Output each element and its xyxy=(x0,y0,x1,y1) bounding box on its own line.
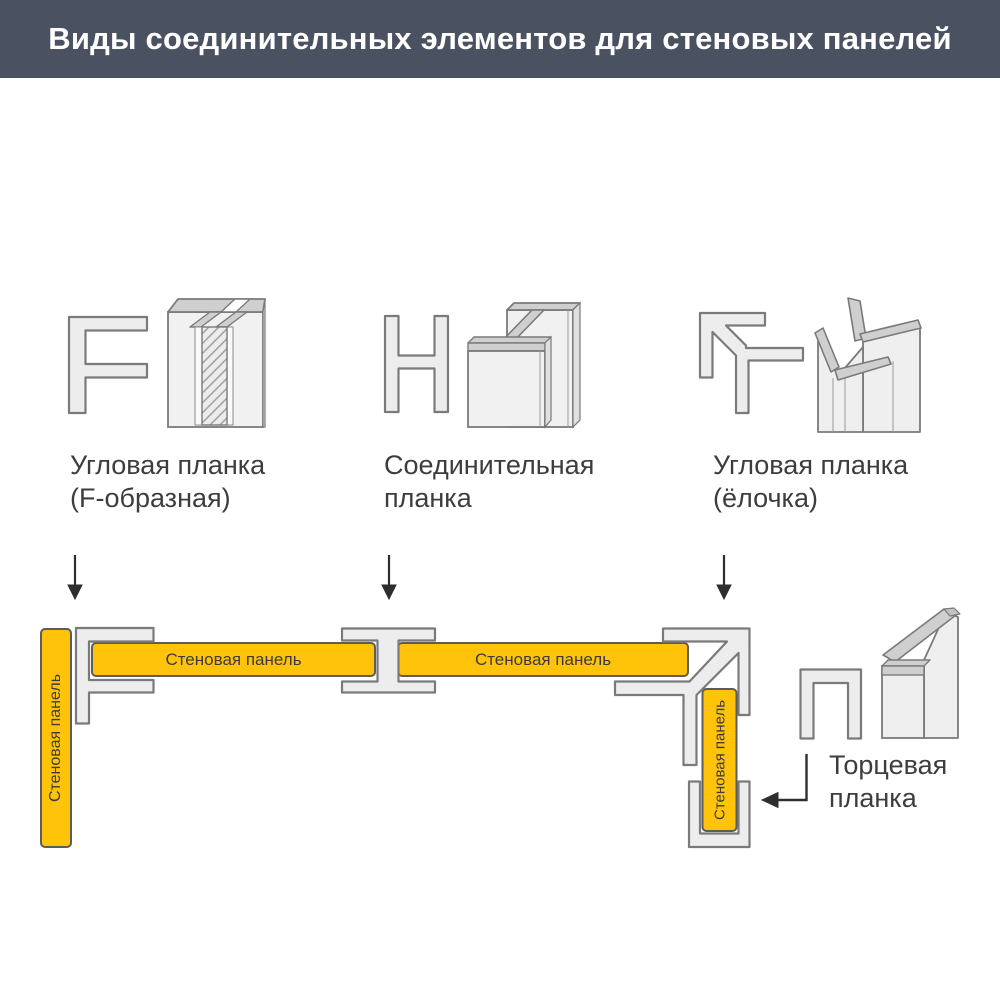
wall-panel-label-horizontal-2: Стеновая панель xyxy=(398,643,688,676)
header-bar: Виды соединительных элементов для стенов… xyxy=(0,0,1000,78)
wall-panel-label-right-vertical: Стеновая панель xyxy=(711,700,728,820)
label-h-strip: Соединительная планка xyxy=(384,449,594,515)
label-f-strip: Угловая планка (F-образная) xyxy=(70,449,265,515)
label-herringbone-strip-line1: Угловая планка xyxy=(713,449,908,482)
label-h-strip-line1: Соединительная xyxy=(384,449,594,482)
end-strip-3d-view xyxy=(882,608,960,738)
label-f-strip-line2: (F-образная) xyxy=(70,482,265,515)
label-f-strip-line1: Угловая планка xyxy=(70,449,265,482)
herringbone-profile-outline xyxy=(700,313,803,413)
down-arrow-herringbone-icon xyxy=(717,555,731,599)
page-title: Виды соединительных элементов для стенов… xyxy=(48,21,951,57)
h-profile-3d-view xyxy=(468,303,580,427)
label-h-strip-line2: планка xyxy=(384,482,594,515)
label-herringbone-strip: Угловая планка (ёлочка) xyxy=(713,449,908,515)
label-end-strip-line1: Торцевая xyxy=(829,749,947,782)
wall-panel-label-left-vertical: Стеновая панель xyxy=(47,674,65,802)
h-profile-outline xyxy=(385,316,448,412)
f-profile-outline xyxy=(69,317,147,413)
f-profile-3d-view xyxy=(168,299,265,427)
herringbone-profile-3d-view xyxy=(815,298,921,432)
label-end-strip: Торцевая планка xyxy=(829,749,947,815)
label-end-strip-line2: планка xyxy=(829,782,947,815)
bent-arrow-to-end-strip-icon xyxy=(762,754,807,808)
end-strip-profile-outline xyxy=(801,670,862,739)
wall-panel-label-horizontal-1: Стеновая панель xyxy=(92,643,375,676)
label-herringbone-strip-line2: (ёлочка) xyxy=(713,482,908,515)
down-arrow-f-icon xyxy=(68,555,82,599)
down-arrow-h-icon xyxy=(382,555,396,599)
